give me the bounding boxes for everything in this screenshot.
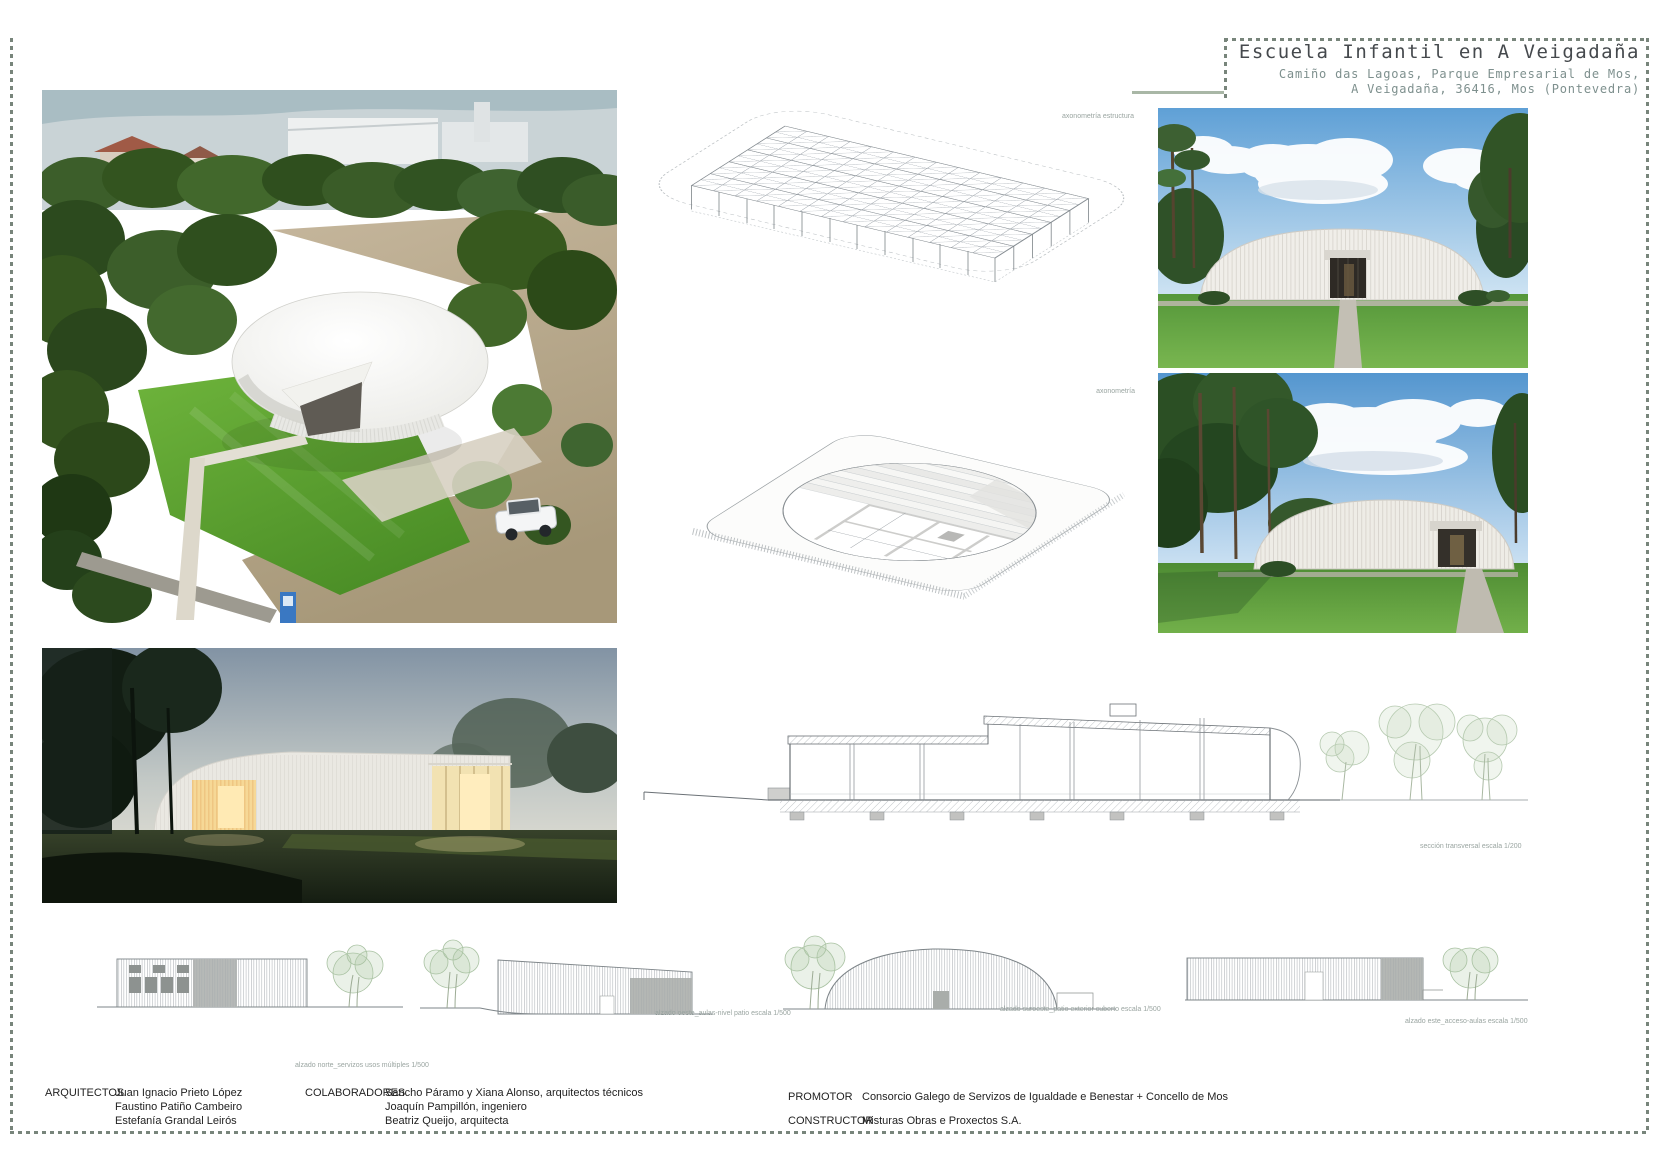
elevation-tree [327, 945, 383, 993]
elevation-tree [785, 936, 845, 989]
title-box-border-left [1224, 38, 1227, 102]
architect-name: Estefanía Grandal Leirós [115, 1114, 242, 1128]
elevation-north-drawing [95, 943, 405, 1038]
elevation-caption-3: alzado suroeste_patio exterior cuberto e… [1000, 1006, 1115, 1013]
collaborators-names: Sancho Páramo y Xiana Alonso, arquitecto… [385, 1086, 643, 1128]
aerial-sign [280, 592, 296, 623]
constructor-value: Misturas Obras e Proxectos S.A. [862, 1114, 1022, 1128]
elevation-east-drawing [1185, 942, 1530, 1030]
presentation-board: Escuela Infantil en A Veigadaña Camiño d… [0, 0, 1655, 1170]
collaborator-name: Joaquín Pampillón, ingeniero [385, 1100, 643, 1114]
section-trees [1320, 704, 1517, 780]
elevation-caption-2: alzado oeste_aulas-nivel patio escala 1/… [655, 1010, 770, 1017]
elevation-southwest-drawing [783, 933, 1118, 1028]
section-drawing [640, 688, 1530, 860]
axonometric-structure-drawing [645, 98, 1135, 343]
page-border-right [1646, 38, 1649, 1134]
elevation-caption-1: alzado norte_servizos usos múltiples 1/5… [295, 1062, 405, 1069]
address-line-1: Camiño das Lagoas, Parque Empresarial de… [1238, 67, 1640, 82]
facade-photo-1 [1158, 108, 1528, 368]
title-accent-line [1132, 91, 1224, 94]
promoter-value: Consorcio Galego de Servizos de Igualdad… [862, 1090, 1228, 1104]
axonometric-roof-drawing [655, 375, 1125, 655]
architect-name: Faustino Patiño Cambeiro [115, 1100, 242, 1114]
axon-roof-label: axonometría [1080, 388, 1135, 395]
title-block: Escuela Infantil en A Veigadaña Camiño d… [1238, 41, 1640, 97]
architect-name: Juan Ignacio Prieto López [115, 1086, 242, 1100]
constructor-label: CONSTRUCTOR [788, 1114, 873, 1128]
elevation-caption-4: alzado este_acceso-aulas escala 1/500 [1405, 1018, 1520, 1025]
collaborator-name: Beatriz Queijo, arquitecta [385, 1114, 643, 1128]
dusk-photo [42, 648, 617, 903]
promoter-label: PROMOTOR [788, 1090, 853, 1104]
page-border-bottom [10, 1131, 1649, 1134]
axon-structure-label: axonometría estructura [1062, 113, 1134, 120]
collaborator-name: Sancho Páramo y Xiana Alonso, arquitecto… [385, 1086, 643, 1100]
project-address: Camiño das Lagoas, Parque Empresarial de… [1238, 67, 1640, 97]
section-building [788, 704, 1300, 800]
elevation-tree [424, 940, 479, 988]
page-border-left [10, 38, 13, 1134]
architects-names: Juan Ignacio Prieto López Faustino Patiñ… [115, 1086, 242, 1128]
architects-label: ARQUITECTOS [45, 1086, 124, 1100]
aerial-photo [42, 90, 617, 623]
section-caption: sección transversal escala 1/200 [1420, 843, 1520, 850]
facade-photo-2 [1158, 373, 1528, 633]
project-title: Escuela Infantil en A Veigadaña [1238, 41, 1640, 63]
footings [790, 812, 1284, 820]
elevation-tree [1443, 947, 1498, 988]
address-line-2: A Veigadaña, 36416, Mos (Pontevedra) [1238, 82, 1640, 97]
